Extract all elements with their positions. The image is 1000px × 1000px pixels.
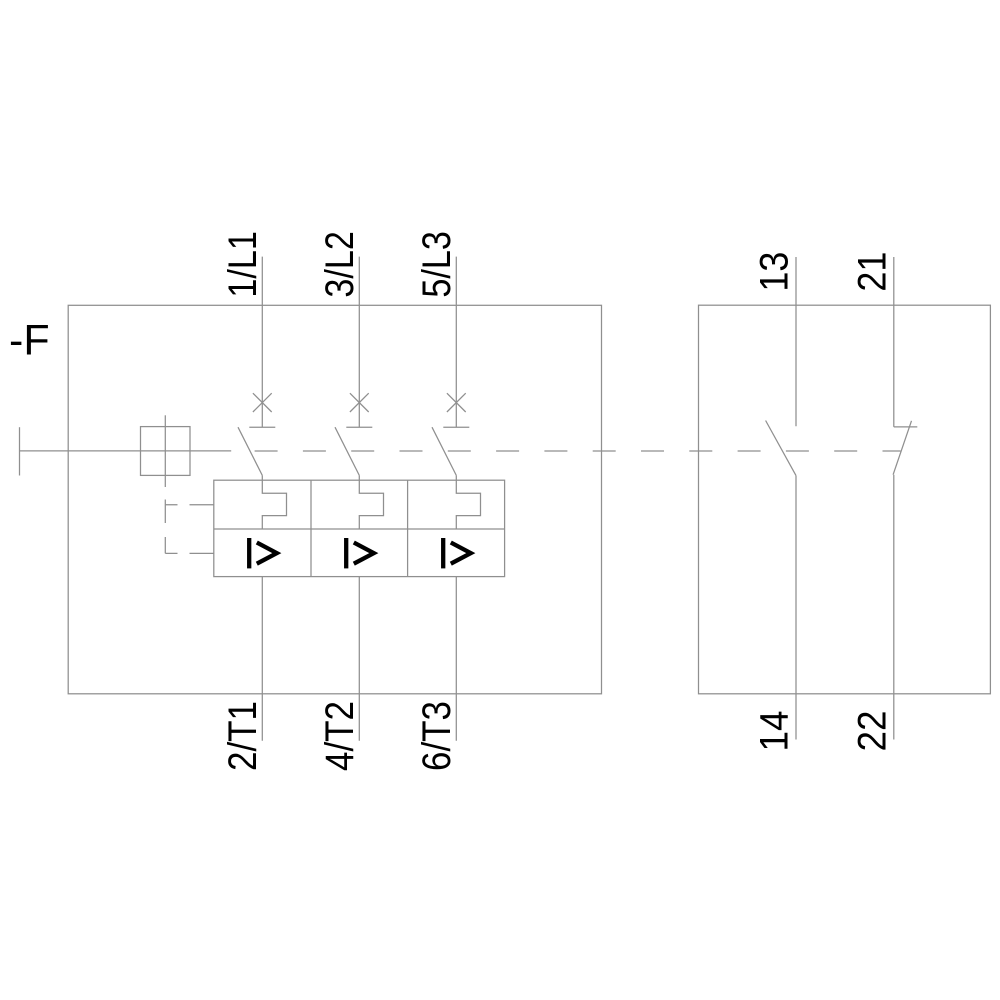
svg-text:4/T2: 4/T2 [318,701,362,771]
svg-text:5/L3: 5/L3 [415,231,459,298]
svg-text:14: 14 [753,711,797,752]
svg-text:6/T3: 6/T3 [415,701,459,771]
svg-text:-F: -F [9,316,50,364]
svg-text:1/L1: 1/L1 [221,231,265,297]
svg-text:21: 21 [850,252,894,292]
svg-text:3/L2: 3/L2 [318,231,362,298]
svg-text:2/T1: 2/T1 [221,701,265,771]
svg-text:13: 13 [753,252,797,292]
svg-text:22: 22 [850,711,894,752]
